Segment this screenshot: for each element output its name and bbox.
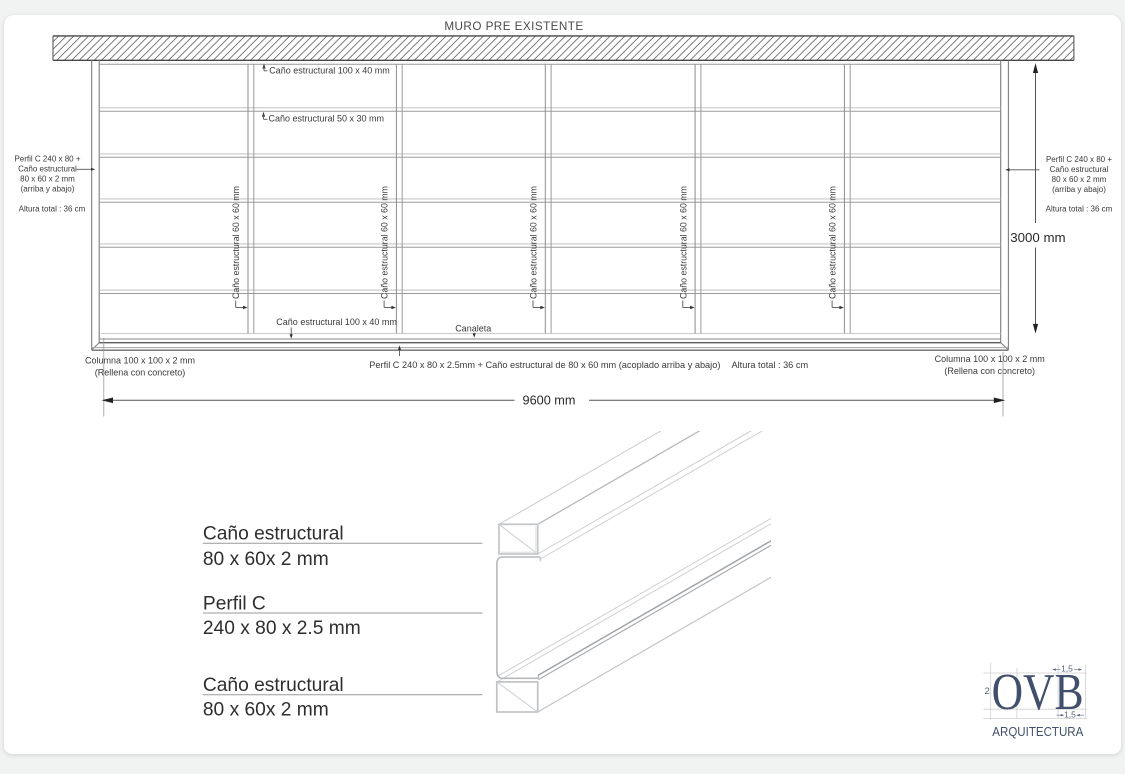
svg-text:Perfil C 240 x 80 x 2.5mm + Ca: Perfil C 240 x 80 x 2.5mm + Caño estruct… — [369, 360, 720, 370]
svg-text:Caño estructural 100 x 40 mm: Caño estructural 100 x 40 mm — [269, 66, 390, 76]
svg-text:Columna 100 x 100 x 2 mm: Columna 100 x 100 x 2 mm — [85, 356, 195, 366]
svg-text:ARQUITECTURA: ARQUITECTURA — [992, 724, 1083, 739]
svg-text:9600 mm: 9600 mm — [523, 394, 576, 408]
svg-text:Altura total : 36 cm: Altura total : 36 cm — [1046, 205, 1113, 214]
svg-text:Caño estructural 50 x 30 mm: Caño estructural 50 x 30 mm — [269, 113, 385, 123]
svg-text:(arriba y abajo): (arriba y abajo) — [1052, 185, 1106, 194]
svg-text:2: 2 — [985, 686, 990, 697]
svg-text:Caño estructural: Caño estructural — [18, 165, 77, 174]
svg-text:Perfil C: Perfil C — [203, 594, 266, 615]
svg-text:(arriba y abajo): (arriba y abajo) — [21, 185, 75, 194]
svg-text:80 x 60x 2 mm: 80 x 60x 2 mm — [203, 699, 329, 720]
svg-text:Caño estructural 60 x 60 mm: Caño estructural 60 x 60 mm — [678, 186, 688, 299]
svg-text:Altura total : 36 cm: Altura total : 36 cm — [732, 360, 809, 370]
svg-text:Caño estructural 60 x 60 mm: Caño estructural 60 x 60 mm — [380, 186, 390, 299]
svg-text:Perfil C 240 x 80 +: Perfil C 240 x 80 + — [1046, 155, 1112, 164]
svg-text:80 x 60 x 2 mm: 80 x 60 x 2 mm — [1052, 175, 1107, 184]
svg-text:(Rellena con concreto): (Rellena con concreto) — [944, 366, 1035, 376]
svg-text:MURO PRE EXISTENTE: MURO PRE EXISTENTE — [444, 20, 583, 33]
svg-text:1,5: 1,5 — [1064, 709, 1076, 719]
svg-text:Caño estructural 60 x 60 mm: Caño estructural 60 x 60 mm — [529, 186, 539, 299]
svg-text:Columna 100 x 100 x 2 mm: Columna 100 x 100 x 2 mm — [935, 354, 1045, 364]
svg-text:240 x 80 x 2.5 mm: 240 x 80 x 2.5 mm — [203, 618, 361, 639]
svg-text:Caño estructural 100 x 40 mm: Caño estructural 100 x 40 mm — [276, 317, 397, 327]
svg-text:1,5: 1,5 — [1061, 663, 1073, 673]
svg-text:(Rellena con concreto): (Rellena con concreto) — [95, 367, 186, 377]
svg-text:80 x 60x 2 mm: 80 x 60x 2 mm — [203, 549, 329, 570]
svg-text:Caño estructural 60 x 60 mm: Caño estructural 60 x 60 mm — [828, 186, 838, 299]
svg-text:Altura total : 36 cm: Altura total : 36 cm — [19, 204, 86, 213]
svg-text:80 x 60 x 2 mm: 80 x 60 x 2 mm — [20, 175, 75, 184]
svg-text:3000 mm: 3000 mm — [1010, 230, 1065, 245]
svg-text:Caño estructural 60 x 60 mm: Caño estructural 60 x 60 mm — [231, 186, 241, 299]
svg-text:Caño estructural: Caño estructural — [203, 675, 344, 696]
svg-text:Caño estructural: Caño estructural — [1050, 165, 1109, 174]
svg-text:Canaleta: Canaleta — [455, 323, 491, 333]
svg-text:Caño estructural: Caño estructural — [203, 524, 344, 545]
svg-text:Perfil C 240 x 80 +: Perfil C 240 x 80 + — [14, 155, 80, 164]
